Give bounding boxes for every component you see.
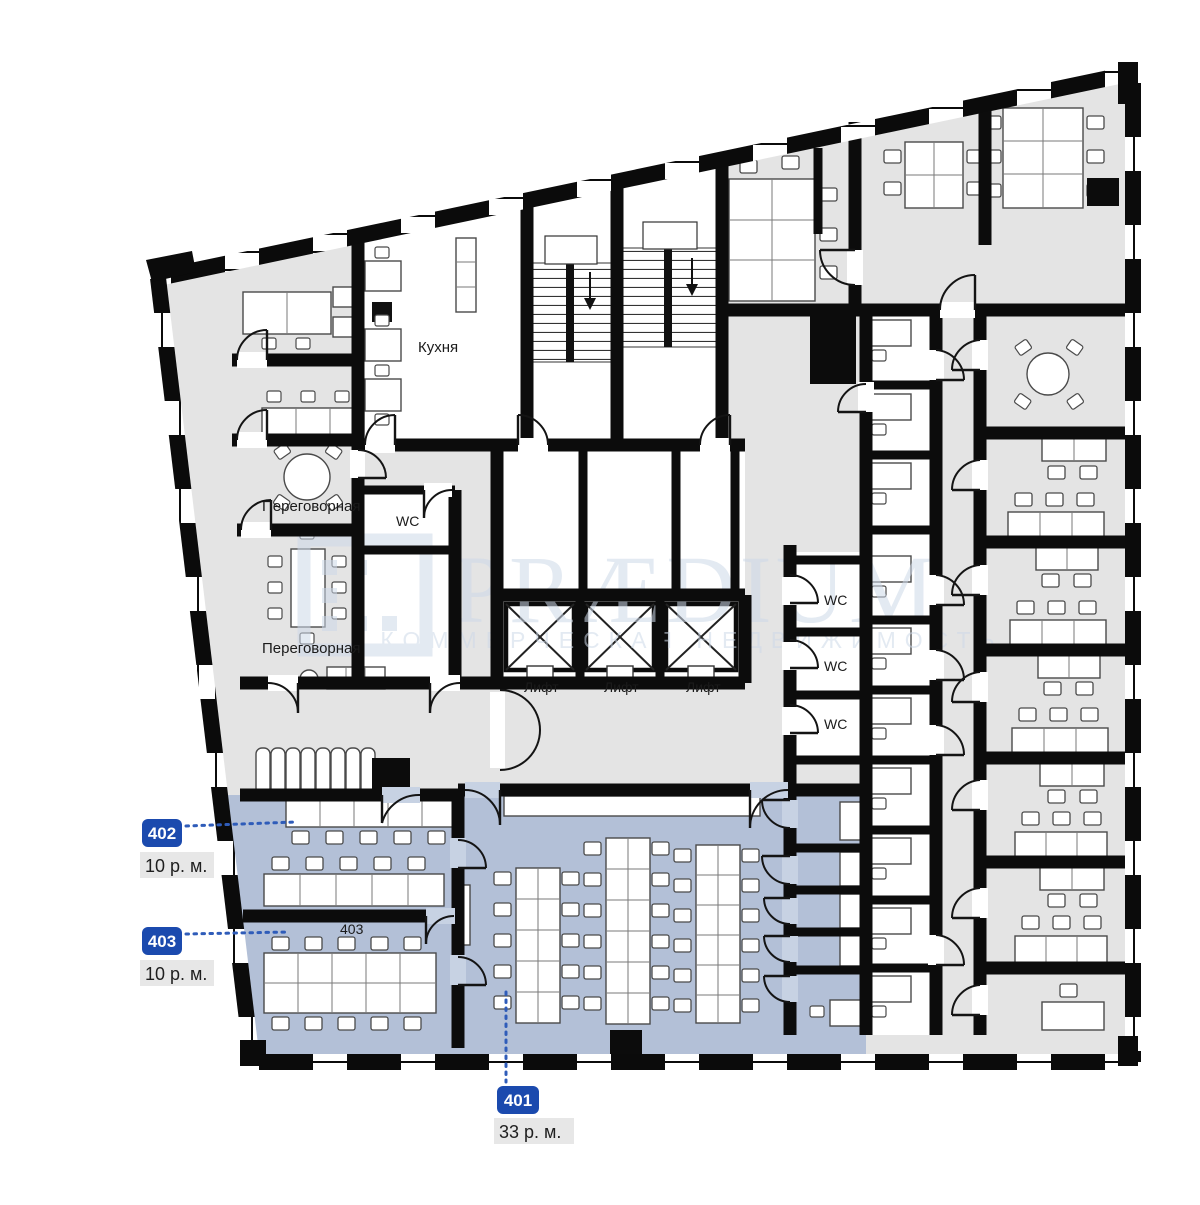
badge-402-number: 402 [148, 824, 176, 843]
meeting-room-1-label: Переговорная [262, 498, 361, 515]
meeting-room-2-label: Переговорная [262, 640, 361, 657]
lift-label-1: Лифт [524, 679, 559, 695]
wc-label-2: WC [824, 592, 847, 608]
room-403-floor-label: 403 [340, 921, 364, 937]
watermark-tagline: КОММЕРЧЕСКАЯ НЕДВИЖИМОСТЬ [380, 627, 1003, 653]
floor-plan: PRÆDIUM КОММЕРЧЕСКАЯ НЕДВИЖИМОСТЬ [0, 0, 1200, 1200]
kitchen-label: Кухня [418, 339, 458, 356]
badge-402-area: 10 р. м. [145, 856, 207, 876]
badge-401[interactable]: 401 33 р. м. [494, 1086, 574, 1144]
lift-label-3: Лифт [686, 679, 721, 695]
wc-label-4: WC [824, 716, 847, 732]
floor-plan-canvas: PRÆDIUM КОММЕРЧЕСКАЯ НЕДВИЖИМОСТЬ [0, 0, 1200, 1200]
badge-401-area: 33 р. м. [499, 1122, 561, 1142]
office-left-2 [262, 391, 364, 438]
lift-label-2: Лифт [604, 679, 639, 695]
badge-403-number: 403 [148, 932, 176, 951]
badge-403-area: 10 р. м. [145, 964, 207, 984]
badge-402[interactable]: 402 10 р. м. [140, 819, 214, 878]
wc-label-3: WC [824, 658, 847, 674]
wc-label-1: WC [396, 513, 419, 529]
badge-403[interactable]: 403 10 р. м. [140, 927, 214, 986]
badge-401-number: 401 [504, 1091, 532, 1110]
